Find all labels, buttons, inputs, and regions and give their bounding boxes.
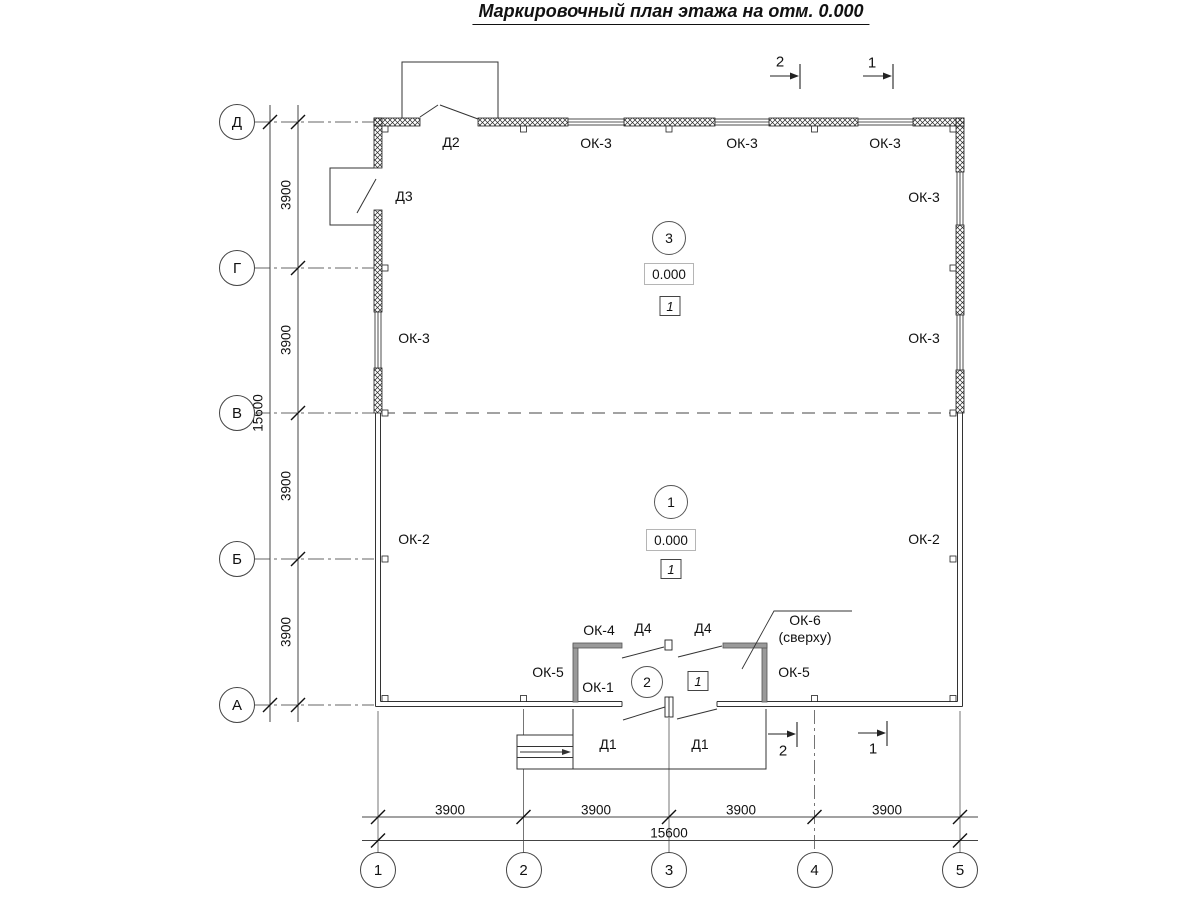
window-mark: ОК-3 [908, 189, 940, 205]
elevation-mark: 0.000 [646, 529, 696, 551]
window-mark: ОК-3 [580, 135, 612, 151]
door-mark: Д3 [395, 188, 412, 204]
axis-bubble-col-3: 3 [651, 852, 687, 888]
window-mark: ОК-3 [398, 330, 430, 346]
window-mark: ОК-5 [778, 664, 810, 680]
bump-d3 [330, 168, 374, 225]
window-mark: ОК-2 [908, 531, 940, 547]
door-d3-leaf [357, 179, 376, 213]
window-mark: ОК-5 [532, 664, 564, 680]
dimension-label: 3900 [279, 471, 294, 501]
section-mark: 2 [779, 743, 787, 760]
entrance-porch [517, 709, 766, 769]
axis-bubble-col-5: 5 [942, 852, 978, 888]
floor-type-mark: 1 [661, 559, 682, 579]
dimension-label: 15600 [650, 826, 688, 841]
window-mark: ОК-3 [908, 330, 940, 346]
door-d2-leaf [420, 105, 438, 117]
room-number-bubble: 3 [652, 221, 686, 255]
floor-type-mark: 1 [660, 296, 681, 316]
door-d2-leaf [440, 105, 478, 119]
room-number-bubble: 1 [654, 485, 688, 519]
floor-plan-page: Маркировочный план этажа на отм. 0.000 [0, 0, 1200, 900]
axis-bubble-col-1: 1 [360, 852, 396, 888]
window-mark: ОК-3 [869, 135, 901, 151]
door-d1-leaf [677, 709, 717, 719]
elevation-mark: 0.000 [644, 263, 694, 285]
window-mark: ОК-4 [583, 622, 615, 638]
dimension-label: 3900 [279, 617, 294, 647]
window-mark: ОК-2 [398, 531, 430, 547]
dimension-label: 3900 [726, 803, 756, 818]
window-mark: ОК-6 [789, 612, 821, 628]
door-mark: Д4 [634, 620, 651, 636]
dimension-label: 3900 [435, 803, 465, 818]
axis-bubble-col-2: 2 [506, 852, 542, 888]
axis-bubble-row-А: А [219, 687, 255, 723]
axis-bubble-row-Г: Г [219, 250, 255, 286]
axis-bubble-row-Д: Д [219, 104, 255, 140]
door-hinge-block [665, 640, 672, 650]
column-markers [382, 126, 956, 702]
axis-bubble-row-В: В [219, 395, 255, 431]
section-mark: 1 [868, 55, 876, 72]
door-d4-leaf [622, 647, 664, 658]
dimension-label: 3900 [872, 803, 902, 818]
room-number-bubble: 2 [631, 666, 663, 698]
door-d1-leaf [623, 707, 665, 720]
section-mark: 1 [869, 741, 877, 758]
door-posts [665, 640, 673, 717]
entrance-bumps [330, 62, 498, 225]
window-mark: ОК-3 [726, 135, 758, 151]
axis-bubble-row-Б: Б [219, 541, 255, 577]
axis-bubble-col-4: 4 [797, 852, 833, 888]
floor-type-mark: 1 [688, 671, 709, 691]
door-mark: Д1 [691, 736, 708, 752]
door-mark: Д1 [599, 736, 616, 752]
canopy-d2 [402, 62, 498, 118]
door-mark: Д2 [442, 134, 459, 150]
door-d4-leaf [678, 646, 722, 657]
section-mark: 2 [776, 54, 784, 71]
dimension-lines [263, 105, 978, 848]
window-mark: ОК-1 [582, 679, 614, 695]
door-mark: Д4 [694, 620, 711, 636]
dimension-label: 3900 [279, 325, 294, 355]
window-mark-note: (сверху) [778, 629, 831, 645]
dimension-label: 3900 [581, 803, 611, 818]
dimension-label: 3900 [279, 180, 294, 210]
